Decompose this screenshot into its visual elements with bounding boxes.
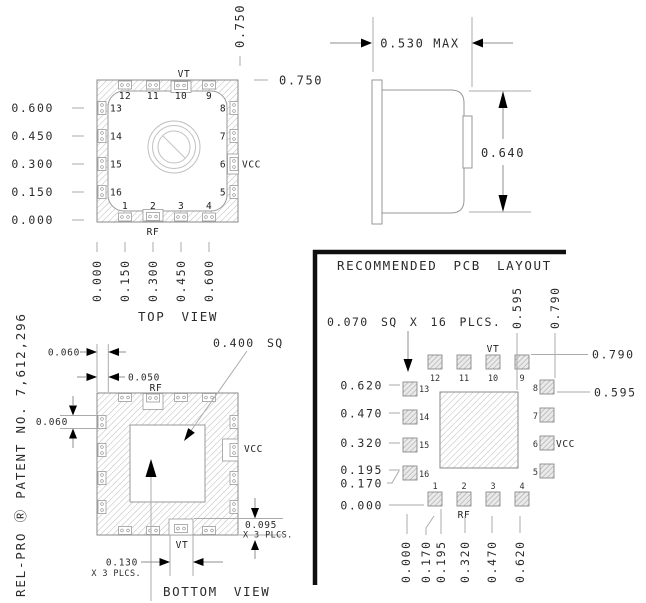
height-label: 0.640 bbox=[481, 146, 525, 160]
dim-label: 0.095 bbox=[245, 520, 277, 531]
dim-label: 0.050 bbox=[128, 373, 160, 384]
pad-number: 6 bbox=[533, 440, 538, 450]
pin-number: 11 bbox=[147, 91, 159, 102]
axis-label: 0.300 bbox=[146, 259, 160, 302]
pin-number: 1 bbox=[122, 201, 128, 212]
pad-number: 3 bbox=[490, 482, 495, 492]
top-view-x-axis: 0.000 0.150 0.300 0.450 0.600 bbox=[90, 242, 216, 302]
axis-label: 0.300 bbox=[11, 157, 54, 171]
axis-label: 0.620 bbox=[340, 379, 383, 393]
pad-number: 9 bbox=[519, 374, 524, 384]
side-view-flange bbox=[372, 80, 382, 224]
overall-height-label: 0.750 bbox=[279, 74, 323, 88]
vcc-label: VCC bbox=[556, 439, 575, 450]
axis-label: 0.600 bbox=[202, 259, 216, 302]
top-view-title: TOP VIEW bbox=[138, 309, 218, 324]
pad-size-leader bbox=[404, 331, 413, 372]
pad-number: 14 bbox=[419, 413, 429, 423]
package-outline-drawing: 12 11 10 9 13 14 15 16 8 7 6 5 1 2 3 4 V… bbox=[0, 0, 646, 603]
axis-label: 0.000 bbox=[399, 540, 413, 583]
pad-number: 15 bbox=[419, 441, 429, 451]
pad-number: 5 bbox=[533, 468, 538, 478]
axis-label: 0.000 bbox=[340, 499, 383, 513]
pad-number: 8 bbox=[533, 384, 538, 394]
edge-offset-dim: 0.060 bbox=[48, 344, 126, 392]
rf-label: RF bbox=[150, 383, 163, 394]
pin-number: 8 bbox=[220, 104, 226, 115]
patent-note: REL-PRO Ⓡ PATENT NO. 7,612,296 bbox=[13, 312, 28, 597]
side-view-height-dim: 0.640 bbox=[469, 91, 531, 212]
pin-number: 6 bbox=[220, 160, 226, 171]
axis-label: 0.000 bbox=[90, 259, 104, 302]
pad-number: 1 bbox=[432, 482, 437, 492]
top-view-y-axis: 0.600 0.450 0.300 0.150 0.000 bbox=[11, 101, 84, 227]
axis-label: 0.150 bbox=[118, 259, 132, 302]
axis-label: 0.320 bbox=[458, 540, 472, 583]
side-view-width-dim: 0.530 MAX bbox=[330, 17, 513, 87]
pin-number: 10 bbox=[175, 91, 187, 102]
pin-number: 12 bbox=[119, 91, 131, 102]
pad-number: 2 bbox=[461, 482, 466, 492]
top-view: 12 11 10 9 13 14 15 16 8 7 6 5 1 2 3 4 V… bbox=[11, 4, 323, 324]
axis-label: 0.790 bbox=[548, 286, 562, 329]
vt-label: VT bbox=[487, 344, 500, 355]
pcb-center-keepout bbox=[440, 392, 518, 468]
cavity-label: 0.400 SQ bbox=[213, 336, 284, 350]
bottom-view-cavity bbox=[130, 425, 205, 502]
vt-label: VT bbox=[178, 69, 191, 80]
pad-offset-dim: 0.050 bbox=[77, 373, 160, 384]
pad-number: 16 bbox=[419, 470, 429, 480]
axis-label: 0.450 bbox=[11, 129, 54, 143]
rf-label: RF bbox=[147, 227, 160, 238]
pin-number: 9 bbox=[206, 91, 212, 102]
mechanical-drawing-page: 12 11 10 9 13 14 15 16 8 7 6 5 1 2 3 4 V… bbox=[0, 0, 646, 603]
dim-note: X 3 PLCS. bbox=[91, 569, 141, 579]
pin-number: 5 bbox=[220, 188, 226, 199]
axis-label: 0.170 bbox=[340, 477, 383, 491]
rf-label: RF bbox=[458, 510, 471, 521]
pad-height-dim: 0.060 bbox=[36, 396, 97, 448]
big-pad-width-dim: 0.130 X 3 PLCS. bbox=[91, 535, 223, 579]
bottom-view: RF VT VCC 0.060 0.050 0.060 bbox=[36, 336, 293, 601]
dim-label: 0.060 bbox=[36, 417, 68, 428]
pin-number: 16 bbox=[110, 188, 122, 199]
pad-number: 10 bbox=[488, 374, 498, 384]
axis-label: 0.170 bbox=[419, 540, 433, 583]
side-view: 0.530 MAX 0.640 bbox=[330, 17, 531, 224]
dim-label: 0.060 bbox=[48, 348, 80, 359]
pad-number: 4 bbox=[519, 482, 524, 492]
bottom-view-title: BOTTOM VIEW bbox=[163, 584, 270, 599]
dim-note: X 3 PLCS. bbox=[243, 531, 293, 541]
pin-number: 4 bbox=[206, 201, 212, 212]
pad-number: 7 bbox=[533, 412, 538, 422]
pcb-top-coords: 0.595 0.790 bbox=[510, 286, 562, 390]
axis-label: 0.195 bbox=[340, 463, 383, 477]
pin-number: 13 bbox=[110, 104, 122, 115]
pin-number: 2 bbox=[150, 201, 156, 212]
axis-label: 0.790 bbox=[592, 348, 635, 362]
pin-number: 3 bbox=[178, 201, 184, 212]
axis-label: 0.620 bbox=[513, 540, 527, 583]
vt-label: VT bbox=[176, 540, 189, 551]
axis-label: 0.595 bbox=[594, 386, 637, 400]
axis-label: 0.320 bbox=[340, 436, 383, 450]
axis-label: 0.595 bbox=[510, 286, 524, 329]
pad-number: 13 bbox=[419, 385, 429, 395]
pcb-layout-title: RECOMMENDED PCB LAYOUT bbox=[337, 258, 552, 273]
side-view-body bbox=[382, 90, 464, 213]
width-max-label: 0.530 MAX bbox=[380, 37, 459, 51]
axis-label: 0.000 bbox=[11, 213, 54, 227]
axis-label: 0.470 bbox=[340, 407, 383, 421]
pad-number: 11 bbox=[459, 374, 469, 384]
axis-label: 0.470 bbox=[485, 540, 499, 583]
pcb-layout: RECOMMENDED PCB LAYOUT 0.070 SQ X 16 PLC… bbox=[313, 250, 637, 585]
pin-number: 7 bbox=[220, 132, 226, 143]
vcc-label: VCC bbox=[242, 160, 261, 171]
vcc-label: VCC bbox=[244, 444, 263, 455]
axis-label: 0.450 bbox=[174, 259, 188, 302]
axis-label: 0.150 bbox=[11, 185, 54, 199]
dim-label: 0.130 bbox=[106, 558, 138, 569]
pad-number: 12 bbox=[430, 374, 440, 384]
pad-size-note: 0.070 SQ X 16 PLCS. bbox=[327, 315, 501, 329]
pin-number: 14 bbox=[110, 132, 122, 143]
axis-label: 0.600 bbox=[11, 101, 54, 115]
top-view-overall-dims: 0.750 0.750 bbox=[233, 4, 323, 88]
overall-width-label: 0.750 bbox=[233, 4, 247, 48]
side-view-tab bbox=[463, 116, 472, 168]
pin-number: 15 bbox=[110, 160, 122, 171]
axis-label: 0.195 bbox=[434, 540, 448, 583]
